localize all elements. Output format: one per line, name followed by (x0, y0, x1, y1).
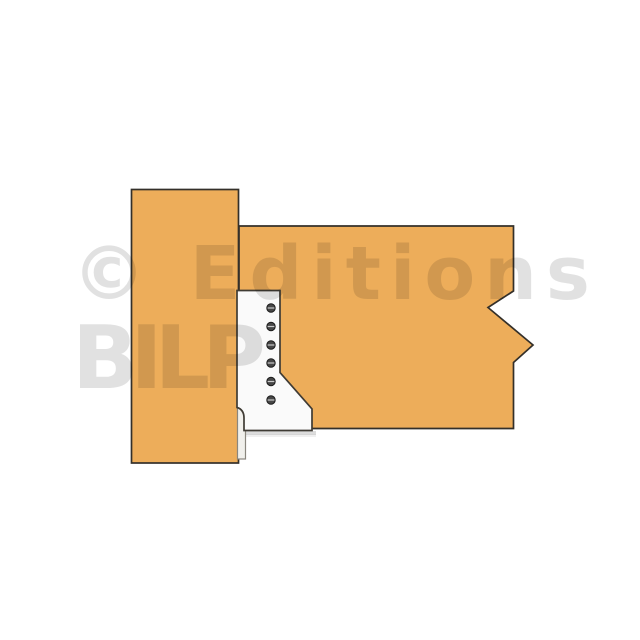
watermark-line2: BILP (72, 307, 263, 409)
screw-icon (267, 396, 275, 404)
screw-icon (267, 377, 275, 385)
screw-icon (267, 341, 275, 349)
illustration-canvas: © Editions BILP (0, 0, 640, 640)
technical-illustration: © Editions BILP (0, 0, 640, 640)
hanger-shadow (238, 431, 316, 437)
watermark-line1: © Editions (72, 231, 599, 317)
screw-icon (267, 359, 275, 367)
screw-icon (267, 322, 275, 330)
